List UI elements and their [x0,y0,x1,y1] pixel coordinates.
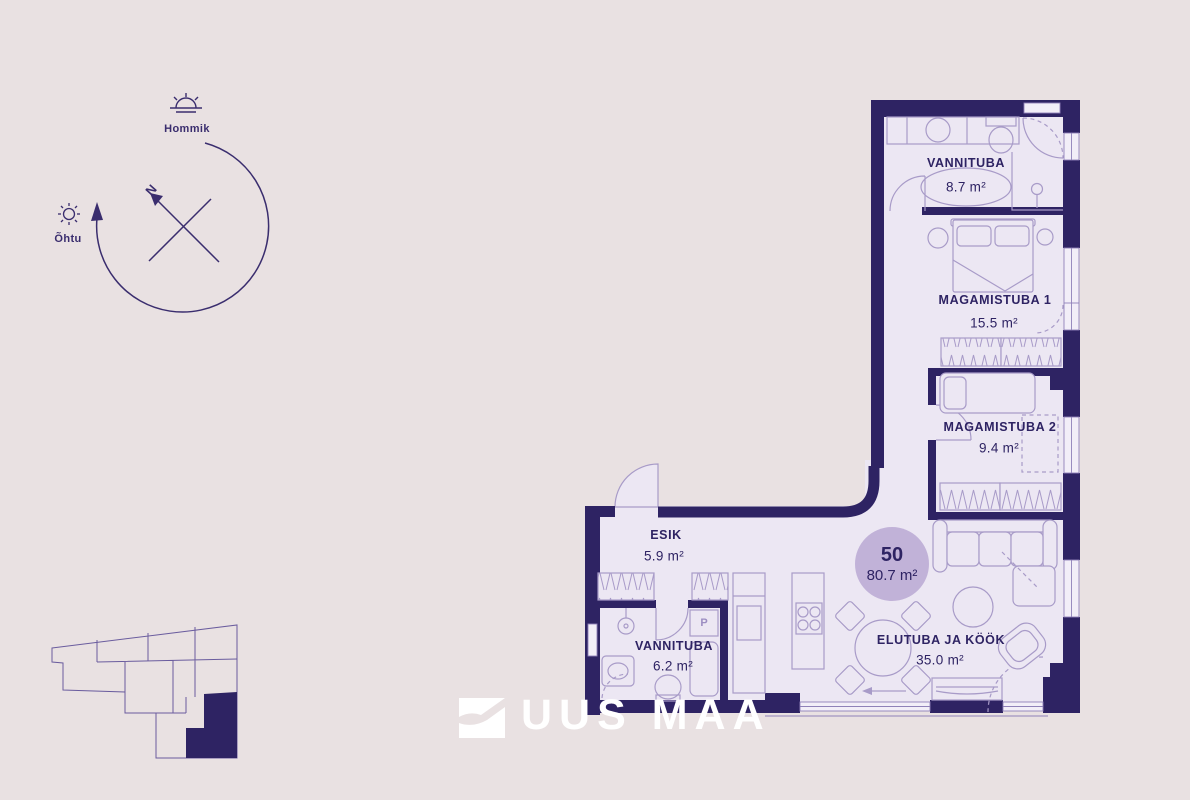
wardrobe-icon [940,483,1000,510]
wardrobe-icon [1000,483,1061,510]
wardrobe-icon [941,338,1001,366]
site-plan [52,625,237,758]
room-area-hallway: 5.9 m² [644,549,684,564]
compass-evening-label: Õhtu [54,233,81,245]
room-area-bathroom1: 8.7 m² [946,180,986,195]
floor-plan [585,100,1080,716]
room-area-living: 35.0 m² [916,653,964,668]
room-name-bedroom1: MAGAMISTUBA 1 [939,293,1052,307]
shaft-recess [1024,103,1060,113]
single-bed-icon [940,373,1035,413]
apartment-total-area: 80.7 m² [867,566,918,585]
room-area-bathroom2: 6.2 m² [653,659,693,674]
sofa-cushion [947,532,979,566]
dining-table-icon [855,620,911,676]
room-name-living: ELUTUBA JA KÖÖK [877,633,1005,647]
washing-machine-label: P [700,617,707,629]
wardrobe-icon [1001,338,1061,366]
rounded-corridor-wall [658,466,874,512]
cross-line [149,199,211,261]
shaft-recess [588,624,597,656]
sunrise-icon [170,93,202,112]
north-arrow-line [157,200,219,262]
highlighted-unit [186,692,237,758]
compass-morning-label: Hommik [164,123,210,135]
room-name-bathroom1: VANNITUBA [927,156,1005,170]
wardrobe-icon [598,573,654,600]
room-name-bedroom2: MAGAMISTUBA 2 [944,420,1057,434]
sun-icon [58,203,80,225]
sofa-armrest [933,520,947,572]
brand-logo-text: UUS MAA [521,690,771,740]
plan-graphics [0,0,1190,800]
apartment-badge: 50 80.7 m² [855,527,929,601]
arc-arrowhead [91,202,103,221]
uus-maa-logo-icon [455,690,507,740]
brand-logo: UUS MAA [455,690,771,740]
sofa-chaise [1013,566,1055,606]
room-area-bedroom1: 15.5 m² [970,316,1018,331]
apartment-number: 50 [881,544,903,566]
floor-plan-page: VANNITUBA 8.7 m² MAGAMISTUBA 1 15.5 m² M… [0,0,1190,800]
wardrobe-icon [692,573,728,600]
sofa-cushion [979,532,1011,566]
room-name-hallway: ESIK [650,528,682,542]
room-name-bathroom2: VANNITUBA [635,639,713,653]
sofa-armrest [1043,520,1057,570]
room-area-bedroom2: 9.4 m² [979,441,1019,456]
entrance-door-arc [615,464,658,507]
sofa-back [935,520,1055,532]
sofa-cushion [1011,532,1043,566]
